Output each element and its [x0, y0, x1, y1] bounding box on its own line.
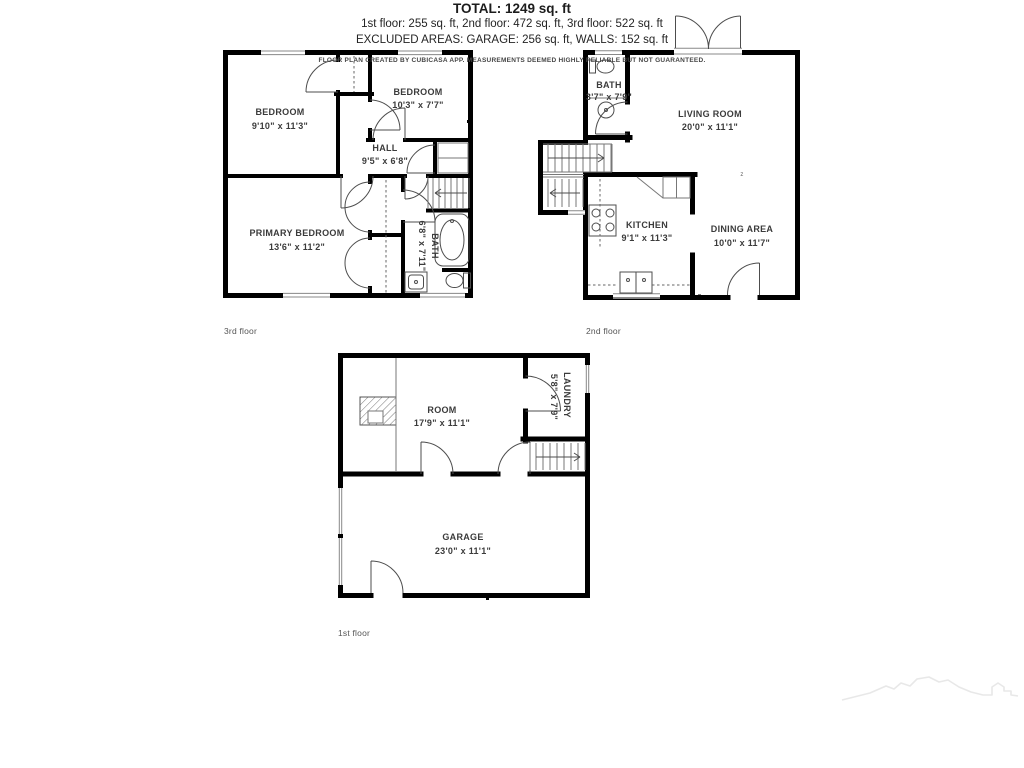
room-label-garage: GARAGE: [442, 532, 483, 542]
room-dims-bedroom2: 10'3" x 7'7": [392, 100, 443, 110]
floor-label-2nd: 2nd floor: [586, 326, 621, 336]
floor-label-1st: 1st floor: [338, 628, 370, 638]
bifold-closet-doors: [345, 182, 370, 288]
room-labels-3rd: BEDROOM 9'10" x 11'3" BEDROOM 10'3" x 7'…: [249, 87, 443, 271]
floor-areas-text: 1st floor: 255 sq. ft, 2nd floor: 472 sq…: [0, 17, 1024, 33]
garage-door: [371, 561, 403, 593]
room-labels-1st: ROOM 17'9" x 11'1" GARAGE 23'0" x 11'1" …: [414, 372, 572, 556]
room-dims-hall: 9'5" x 6'8": [362, 156, 408, 166]
room-label-bath: BATH: [430, 233, 440, 259]
room-label-kitchen: KITCHEN: [626, 220, 668, 230]
total-area-text: TOTAL: 1249 sq. ft: [0, 0, 1024, 17]
room-label-laundry: LAUNDRY: [562, 372, 572, 418]
stairs-3rd-icon: [428, 178, 469, 208]
corner-pantry: [637, 177, 663, 198]
sink-icon: [405, 272, 427, 292]
room-dims-kitchen: 9'1" x 11'3": [622, 233, 673, 243]
toilet-icon: [446, 273, 471, 288]
room-dims-garage: 23'0" x 11'1": [435, 546, 491, 556]
counter-outline: [588, 179, 690, 285]
room-dims-primary: 13'6" x 11'2": [269, 242, 325, 252]
room-label-room: ROOM: [427, 405, 456, 415]
z-marker: z: [740, 172, 743, 178]
floor-plan-3rd: BEDROOM 9'10" x 11'3" BEDROOM 10'3" x 7'…: [223, 50, 473, 298]
room-dims-laundry: 5'8" x 7'9": [549, 374, 559, 420]
excluded-areas-text: EXCLUDED AREAS: GARAGE: 256 sq. ft, WALL…: [0, 33, 1024, 49]
room-label-dining: DINING AREA: [711, 224, 774, 234]
room-dims-dining: 10'0" x 11'7": [714, 238, 770, 248]
floor-plan-page: BEDROOM 9'10" x 11'3" BEDROOM 10'3" x 7'…: [0, 0, 1024, 768]
room-label-bedroom1: BEDROOM: [255, 107, 304, 117]
area-summary: TOTAL: 1249 sq. ft 1st floor: 255 sq. ft…: [0, 0, 1024, 64]
room-label-hall: HALL: [372, 143, 397, 153]
disclaimer-text: FLOOR PLAN CREATED BY CUBICASA APP. MEAS…: [0, 57, 1024, 64]
mountain-sketch-icon: [840, 664, 1020, 706]
room-label-bedroom2: BEDROOM: [393, 87, 442, 97]
floor-plan-1st: ROOM 17'9" x 11'1" GARAGE 23'0" x 11'1" …: [336, 351, 594, 601]
dining-door: [728, 263, 760, 295]
closet-shelf: [438, 143, 468, 173]
floor-label-3rd: 3rd floor: [224, 326, 257, 336]
room-label-living: LIVING ROOM: [678, 109, 742, 119]
room-dims-bath: 6'8" x 7'11": [417, 221, 427, 272]
room-dims-bedroom1: 9'10" x 11'3": [252, 121, 308, 131]
room-dims-room: 17'9" x 11'1": [414, 418, 470, 428]
doors-1st: [371, 376, 561, 593]
fireplace-icon: [360, 358, 396, 471]
room-dims-living: 20'0" x 11'1": [682, 122, 738, 132]
room-dims-bath2: 3'7" x 7'9": [586, 92, 632, 102]
room-label-primary: PRIMARY BEDROOM: [249, 228, 344, 238]
room-label-bath2: BATH: [596, 80, 622, 90]
stairs-1st-icon: [530, 443, 585, 470]
